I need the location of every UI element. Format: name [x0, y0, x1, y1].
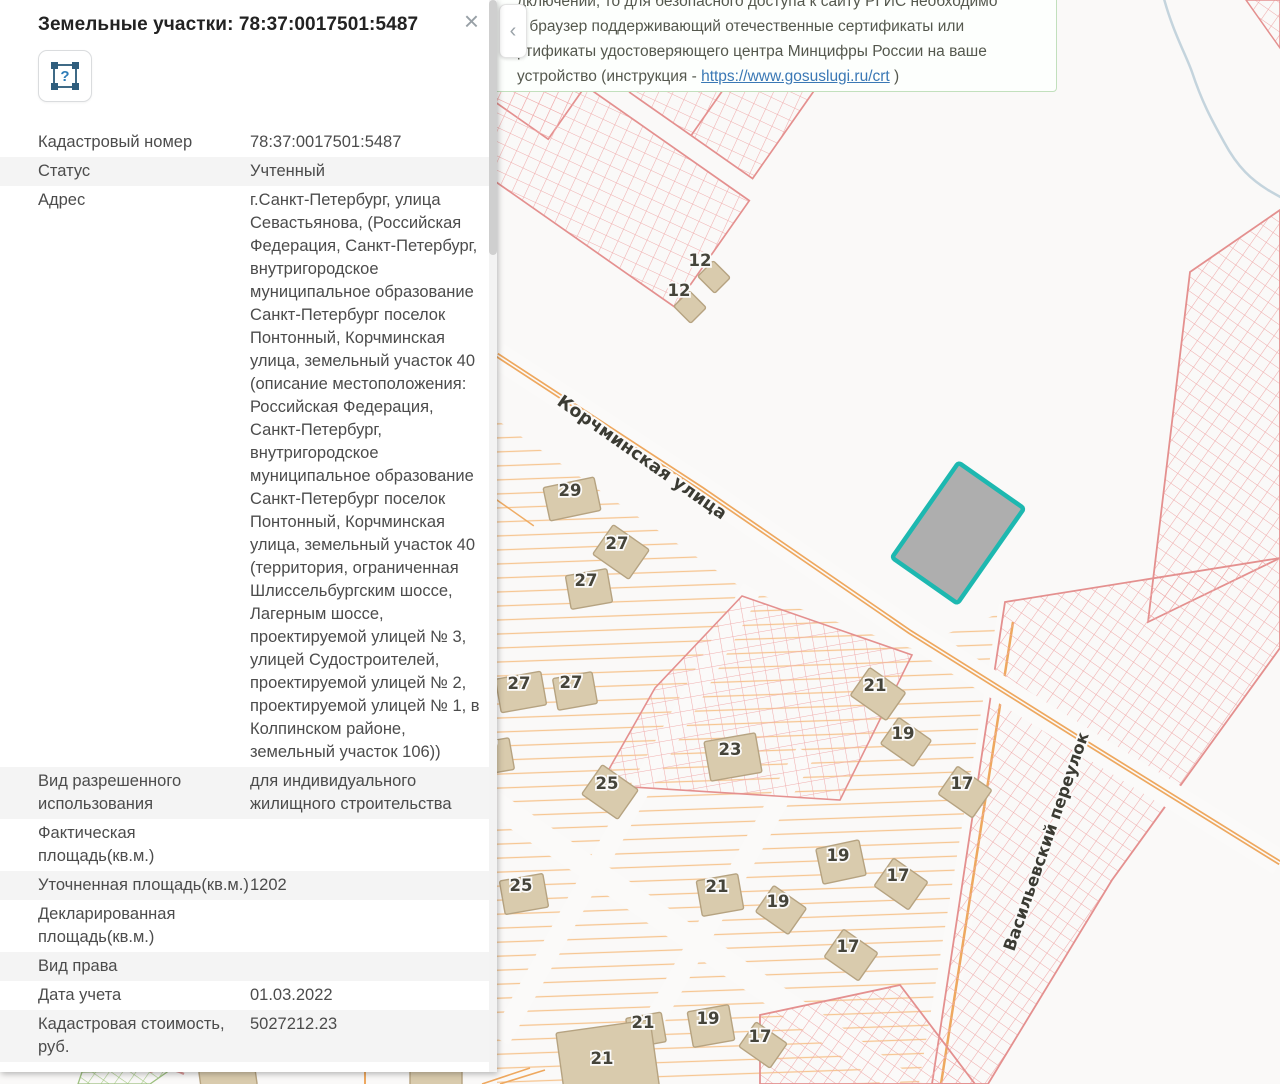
- attribute-row: Кадастровый номер78:37:0017501:5487: [0, 128, 497, 157]
- notification-line: устройство (инструкция - https://www.gos…: [517, 64, 1056, 89]
- attribute-value: Учтенный: [250, 160, 485, 183]
- attribute-value: для индивидуального жилищного строительс…: [250, 770, 485, 816]
- notification-line: дключений, то для безопасного доступа к …: [517, 0, 1056, 14]
- parcel-number-label: 21: [632, 1013, 655, 1032]
- parcel-number-label: 21: [591, 1049, 614, 1068]
- parcel-number-label: 17: [837, 937, 860, 956]
- panel-scrollbar-thumb[interactable]: [489, 0, 497, 255]
- parcel-number-label: 21: [864, 676, 887, 695]
- parcel-number-label: 19: [697, 1009, 720, 1028]
- parcel-number-label: 27: [575, 571, 598, 590]
- parcel-number-label: 27: [560, 673, 583, 692]
- attribute-row: Фактическая площадь(кв.м.): [0, 819, 497, 871]
- parcel-number-label: 19: [767, 892, 790, 911]
- close-icon[interactable]: ×: [464, 8, 479, 34]
- attribute-label: Уточненная площадь(кв.м.): [0, 874, 250, 897]
- parcel-number-label: 17: [887, 866, 910, 885]
- chevron-left-icon: ‹: [510, 20, 517, 43]
- identify-tool-button[interactable]: ?: [38, 50, 92, 102]
- parcel-info-panel: Земельные участки: 78:37:0017501:5487 × …: [0, 0, 497, 1072]
- attribute-value: г.Санкт-Петербург, улица Севастьянова, (…: [250, 189, 485, 764]
- attribute-label: Дата учета: [0, 984, 250, 1007]
- parcel-number-label: 21: [706, 877, 729, 896]
- attribute-value: [250, 955, 485, 978]
- attribute-label: Адрес: [0, 189, 250, 764]
- attribute-label: Декларированная площадь(кв.м.): [0, 903, 250, 949]
- attribute-label: Вид разрешенного использования: [0, 770, 250, 816]
- attribute-label: Кадастровая стоимость, руб.: [0, 1013, 250, 1059]
- attribute-value: 5027212.23: [250, 1013, 485, 1059]
- parcel-number-label: 27: [606, 534, 629, 553]
- parcel-number-label: 19: [827, 846, 850, 865]
- attribute-label: Кадастровый номер: [0, 131, 250, 154]
- attribute-row: СтатусУчтенный: [0, 157, 497, 186]
- parcel-number-label: 19: [892, 724, 915, 743]
- parcel-number-label: 12: [668, 281, 691, 300]
- notification-line: ртификаты удостоверяющего центра Минцифр…: [517, 39, 1056, 64]
- parcel-number-label: 12: [689, 251, 712, 270]
- attribute-label: Статус: [0, 160, 250, 183]
- parcel-number-label: 29: [559, 481, 582, 500]
- attribute-value: [250, 903, 485, 949]
- attribute-row: Адресг.Санкт-Петербург, улица Севастьяно…: [0, 186, 497, 767]
- attributes-table: Кадастровый номер78:37:0017501:5487Стату…: [0, 128, 497, 1062]
- panel-scrollbar[interactable]: [489, 0, 497, 1072]
- parcel-number-label: 27: [508, 674, 531, 693]
- attribute-row: Дата учета01.03.2022: [0, 981, 497, 1010]
- attribute-value: 1202: [250, 874, 485, 897]
- parcel-number-label: 23: [719, 740, 742, 759]
- notification-line: ь браузер поддерживающий отечественные с…: [517, 14, 1056, 39]
- attribute-value: 78:37:0017501:5487: [250, 131, 485, 154]
- attribute-row: Декларированная площадь(кв.м.): [0, 900, 497, 952]
- parcel-number-label: 25: [510, 876, 533, 895]
- parcel-number-label: 17: [951, 774, 974, 793]
- attribute-row: Кадастровая стоимость, руб.5027212.23: [0, 1010, 497, 1062]
- panel-collapse-button[interactable]: ‹: [499, 4, 527, 58]
- parcel-number-label: 25: [596, 774, 619, 793]
- attribute-row: Вид права: [0, 952, 497, 981]
- panel-header: Земельные участки: 78:37:0017501:5487 ×: [0, 0, 497, 36]
- attribute-value: 01.03.2022: [250, 984, 485, 1007]
- attribute-row: Уточненная площадь(кв.м.)1202: [0, 871, 497, 900]
- panel-title: Земельные участки: 78:37:0017501:5487: [38, 14, 418, 35]
- attribute-row: Вид разрешенного использованиядля индиви…: [0, 767, 497, 819]
- attribute-value: [250, 822, 485, 868]
- parcel-number-label: 17: [749, 1027, 772, 1046]
- attribute-label: Вид права: [0, 955, 250, 978]
- attribute-label: Фактическая площадь(кв.м.): [0, 822, 250, 868]
- building-footprint: [410, 1070, 462, 1084]
- identify-parcel-icon: ?: [53, 64, 77, 88]
- gosuslugi-link[interactable]: https://www.gosuslugi.ru/crt: [701, 68, 890, 85]
